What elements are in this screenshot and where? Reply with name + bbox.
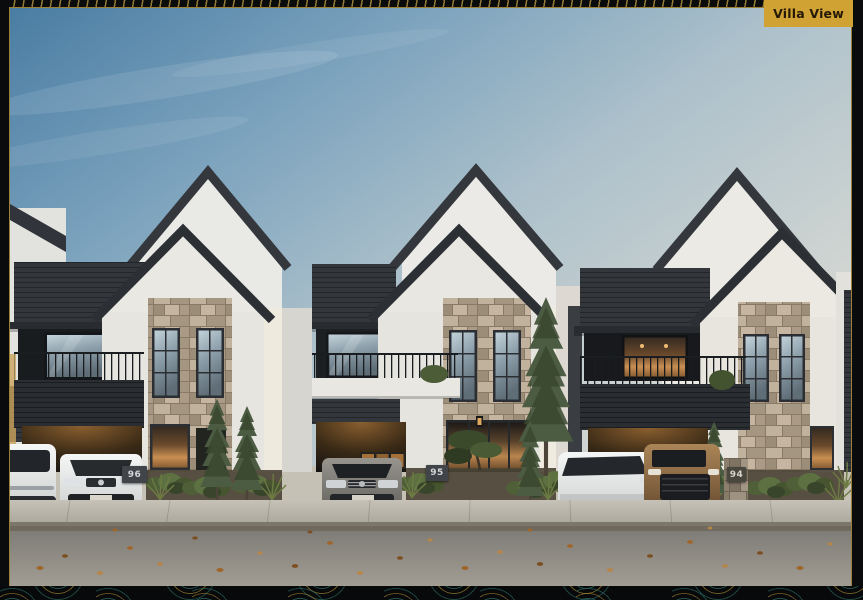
house-number-plate-96: 96 (122, 466, 147, 483)
frame-border-top (0, 0, 863, 8)
house-number-plate-95: 95 (426, 465, 448, 481)
sidewalk (10, 500, 851, 526)
villa-rendering-photo: 96 95 94 (10, 8, 851, 586)
side-wall-gap-left (282, 308, 312, 472)
road (10, 526, 851, 586)
frame-border-left (0, 0, 10, 600)
frame-border-bottom (0, 586, 863, 600)
house-number-plate-94: 94 (727, 467, 746, 482)
brochure-frame: 96 95 94 Villa View (0, 0, 863, 600)
wall-lantern (476, 416, 483, 427)
villa-view-badge: Villa View (764, 0, 853, 27)
frame-border-right (851, 0, 863, 600)
villa-partial-right (836, 272, 851, 472)
